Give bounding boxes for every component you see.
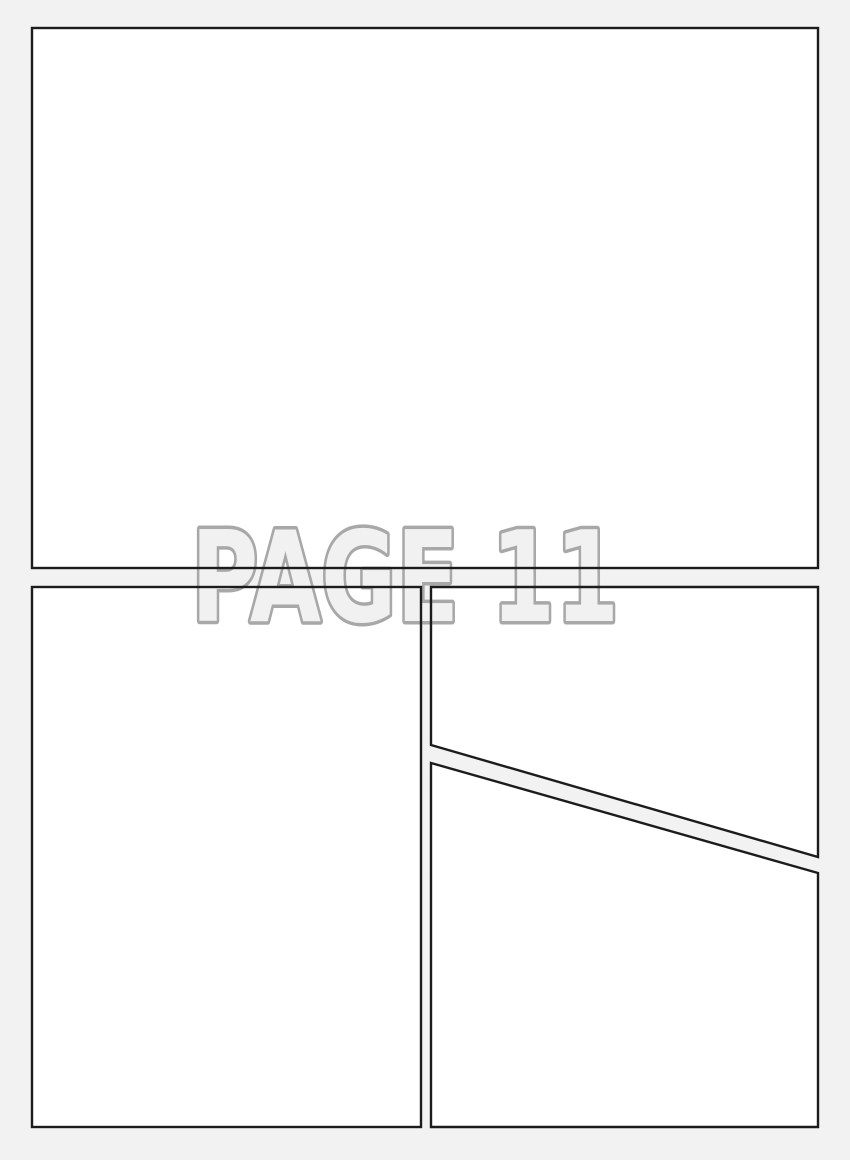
panel-1-top-fill bbox=[32, 28, 818, 568]
panel-2-bottom-left-fill bbox=[32, 587, 421, 1127]
comic-page-template: PAGE 11 bbox=[0, 0, 850, 1160]
page-canvas: PAGE 11 bbox=[0, 0, 850, 1160]
page-title: PAGE 11 bbox=[191, 504, 619, 651]
